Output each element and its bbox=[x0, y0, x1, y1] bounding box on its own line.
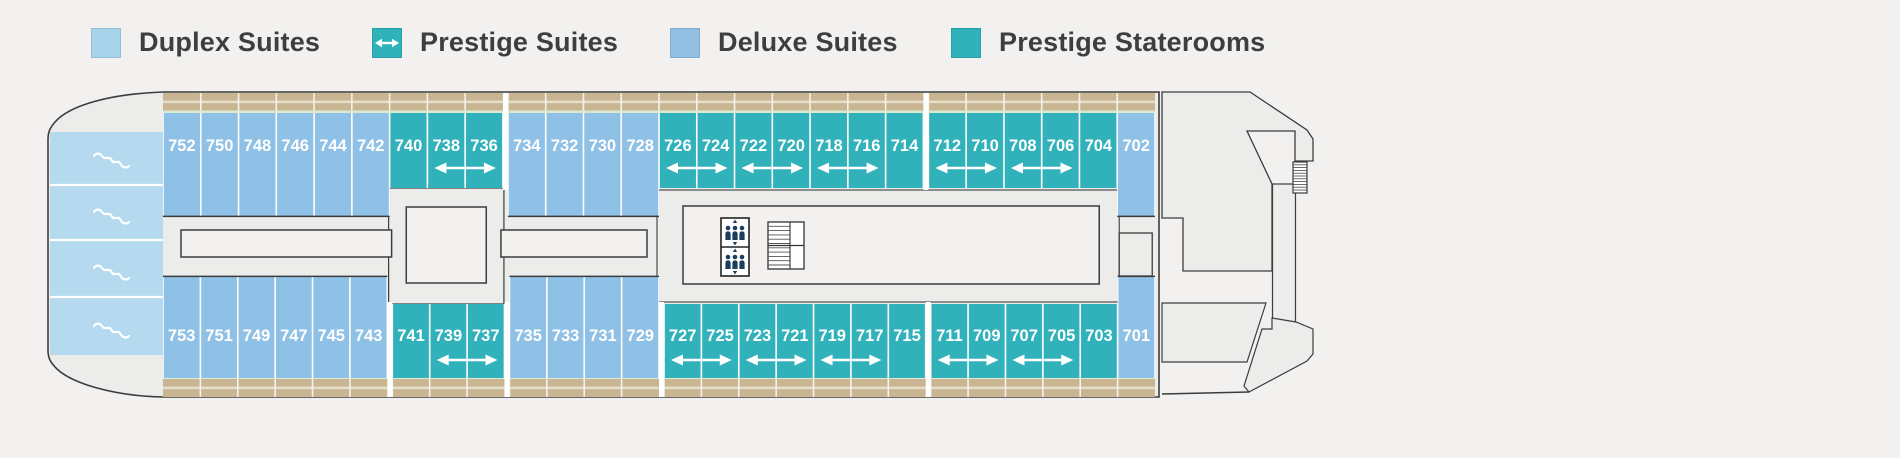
cabin-number-749: 749 bbox=[243, 327, 271, 345]
cabin-702[interactable] bbox=[1118, 113, 1154, 216]
cabin-number-751: 751 bbox=[205, 327, 233, 345]
cabin-744[interactable] bbox=[315, 113, 351, 216]
cabin-number-715: 715 bbox=[893, 327, 921, 345]
legend-item-duplex-suites: Duplex Suites bbox=[91, 27, 320, 58]
legend-item-deluxe-suites: Deluxe Suites bbox=[670, 27, 898, 58]
cabin-number-753: 753 bbox=[168, 327, 196, 345]
cabin-number-717: 717 bbox=[856, 327, 884, 345]
legend-swatch-duplex bbox=[91, 28, 121, 58]
cabin-number-733: 733 bbox=[552, 327, 580, 345]
cabin-number-718: 718 bbox=[815, 137, 843, 155]
cabin-number-727: 727 bbox=[669, 327, 697, 345]
cabin-number-744: 744 bbox=[319, 137, 347, 155]
cabin-number-736: 736 bbox=[470, 137, 498, 155]
legend-swatch-deluxe bbox=[670, 28, 700, 58]
cabin-row-gap bbox=[659, 302, 664, 397]
cabin-number-724: 724 bbox=[702, 137, 730, 155]
legend-label-duplex: Duplex Suites bbox=[139, 27, 320, 58]
cabin-number-728: 728 bbox=[626, 137, 654, 155]
cabin-number-735: 735 bbox=[514, 327, 542, 345]
cabin-number-732: 732 bbox=[551, 137, 579, 155]
cabin-number-701: 701 bbox=[1123, 327, 1151, 345]
cabin-number-721: 721 bbox=[781, 327, 809, 345]
stern-walkway bbox=[1273, 184, 1296, 330]
stern-corridor-piece bbox=[1119, 233, 1152, 276]
cabin-number-722: 722 bbox=[740, 137, 768, 155]
cabin-number-740: 740 bbox=[395, 137, 423, 155]
stern-lower-block bbox=[1162, 303, 1266, 362]
elevator-icon bbox=[721, 218, 749, 276]
deck-plan: Duplex Suites Prestige Suites Deluxe Sui… bbox=[0, 0, 1900, 458]
cabin-734[interactable] bbox=[509, 113, 545, 216]
cabin-row-gap bbox=[387, 302, 392, 397]
cabin-752[interactable] bbox=[164, 113, 200, 216]
legend-swatch-prestige bbox=[372, 28, 402, 58]
legend: Duplex Suites Prestige Suites Deluxe Sui… bbox=[0, 27, 1900, 59]
cabin-number-726: 726 bbox=[664, 137, 692, 155]
cabin-748[interactable] bbox=[239, 113, 275, 216]
cabin-row-gap bbox=[503, 93, 508, 190]
stern-structure bbox=[1162, 92, 1313, 394]
cabin-730[interactable] bbox=[584, 113, 620, 216]
corridor-room-left bbox=[181, 230, 392, 257]
cabin-number-707: 707 bbox=[1010, 327, 1038, 345]
cabin-number-709: 709 bbox=[973, 327, 1001, 345]
duplex-suites-area bbox=[50, 132, 163, 355]
cabin-number-725: 725 bbox=[706, 327, 734, 345]
legend-label-stateroom: Prestige Staterooms bbox=[999, 27, 1265, 58]
cabin-number-741: 741 bbox=[397, 327, 425, 345]
cabin-number-716: 716 bbox=[853, 137, 881, 155]
cabin-number-731: 731 bbox=[589, 327, 617, 345]
cabin-number-720: 720 bbox=[777, 137, 805, 155]
legend-item-prestige-suites: Prestige Suites bbox=[372, 27, 618, 58]
cabin-number-729: 729 bbox=[627, 327, 655, 345]
balcony-strip bbox=[163, 93, 1155, 111]
cabin-number-719: 719 bbox=[818, 327, 846, 345]
cabin-number-746: 746 bbox=[281, 137, 309, 155]
cabin-row-gap bbox=[923, 93, 928, 190]
cabin-742[interactable] bbox=[353, 113, 389, 216]
legend-swatch-stateroom bbox=[951, 28, 981, 58]
cabin-number-723: 723 bbox=[744, 327, 772, 345]
cabin-number-706: 706 bbox=[1047, 137, 1075, 155]
stairwell-room bbox=[406, 207, 486, 283]
cabin-number-705: 705 bbox=[1048, 327, 1076, 345]
cabin-number-747: 747 bbox=[280, 327, 308, 345]
cabin-row-gap bbox=[504, 302, 509, 397]
deck-edge-line-top bbox=[163, 111, 1155, 114]
cabin-number-752: 752 bbox=[168, 137, 196, 155]
cabin-number-712: 712 bbox=[934, 137, 962, 155]
cabin-number-714: 714 bbox=[891, 137, 919, 155]
cabin-746[interactable] bbox=[277, 113, 313, 216]
double-arrow-icon bbox=[375, 36, 399, 50]
cabin-number-745: 745 bbox=[317, 327, 345, 345]
cabin-number-742: 742 bbox=[357, 137, 385, 155]
cabin-number-738: 738 bbox=[433, 137, 461, 155]
cabin-number-704: 704 bbox=[1085, 137, 1113, 155]
cabin-728[interactable] bbox=[622, 113, 658, 216]
stern-stairs-icon bbox=[1293, 162, 1307, 193]
cabin-number-734: 734 bbox=[513, 137, 541, 155]
cabin-number-739: 739 bbox=[435, 327, 463, 345]
cabin-number-737: 737 bbox=[472, 327, 500, 345]
duplex-block[interactable] bbox=[50, 132, 163, 355]
legend-item-prestige-staterooms: Prestige Staterooms bbox=[951, 27, 1265, 58]
cabin-number-711: 711 bbox=[936, 327, 963, 345]
corridor-room-mid bbox=[501, 230, 647, 257]
cabin-number-708: 708 bbox=[1009, 137, 1037, 155]
cabin-row-gap bbox=[926, 302, 931, 397]
cabin-750[interactable] bbox=[202, 113, 238, 216]
cabin-number-710: 710 bbox=[971, 137, 999, 155]
cabin-732[interactable] bbox=[546, 113, 582, 216]
legend-label-prestige: Prestige Suites bbox=[420, 27, 618, 58]
stairs-icon bbox=[768, 222, 804, 269]
cabin-number-730: 730 bbox=[589, 137, 617, 155]
legend-label-deluxe: Deluxe Suites bbox=[718, 27, 898, 58]
cabin-number-748: 748 bbox=[244, 137, 272, 155]
ship-deck-map: 7527507487467447427407387367347327307287… bbox=[0, 0, 1900, 458]
cabin-number-702: 702 bbox=[1122, 137, 1150, 155]
cabin-number-743: 743 bbox=[355, 327, 383, 345]
cabin-number-750: 750 bbox=[206, 137, 234, 155]
cabin-number-703: 703 bbox=[1085, 327, 1113, 345]
